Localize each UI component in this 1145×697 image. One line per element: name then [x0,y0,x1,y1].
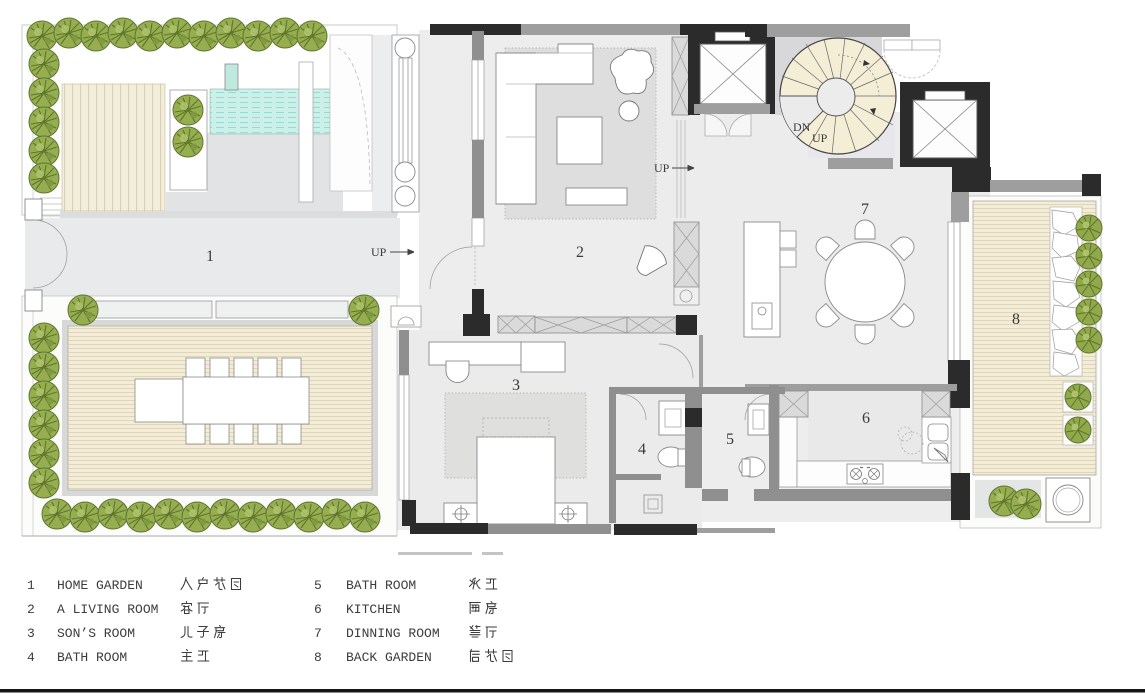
svg-text:8: 8 [314,650,322,665]
svg-text:7: 7 [861,201,869,218]
svg-text:KITCHEN: KITCHEN [346,602,401,617]
svg-text:3: 3 [27,626,35,641]
svg-text:BATH ROOM: BATH ROOM [346,578,416,593]
svg-text:2: 2 [27,602,35,617]
svg-text:UP: UP [371,245,387,259]
svg-text:5: 5 [314,578,322,593]
svg-text:UP: UP [654,161,670,175]
svg-text:3: 3 [512,377,520,394]
svg-text:5: 5 [726,431,734,448]
svg-text:1: 1 [206,248,214,265]
svg-text:4: 4 [638,441,646,458]
svg-text:DN: DN [793,120,811,134]
svg-text:4: 4 [27,650,35,665]
svg-text:SON’S ROOM: SON’S ROOM [57,626,135,641]
svg-text:6: 6 [314,602,322,617]
svg-text:6: 6 [862,410,870,427]
svg-text:A LIVING ROOM: A LIVING ROOM [57,602,158,617]
svg-text:1: 1 [27,578,35,593]
svg-text:8: 8 [1012,311,1020,328]
svg-text:HOME GARDEN: HOME GARDEN [57,578,143,593]
svg-text:DINNING ROOM: DINNING ROOM [346,626,440,641]
svg-text:UP: UP [812,131,828,145]
svg-text:7: 7 [314,626,322,641]
svg-text:BATH ROOM: BATH ROOM [57,650,127,665]
svg-text:BACK GARDEN: BACK GARDEN [346,650,432,665]
svg-text:2: 2 [576,244,584,261]
